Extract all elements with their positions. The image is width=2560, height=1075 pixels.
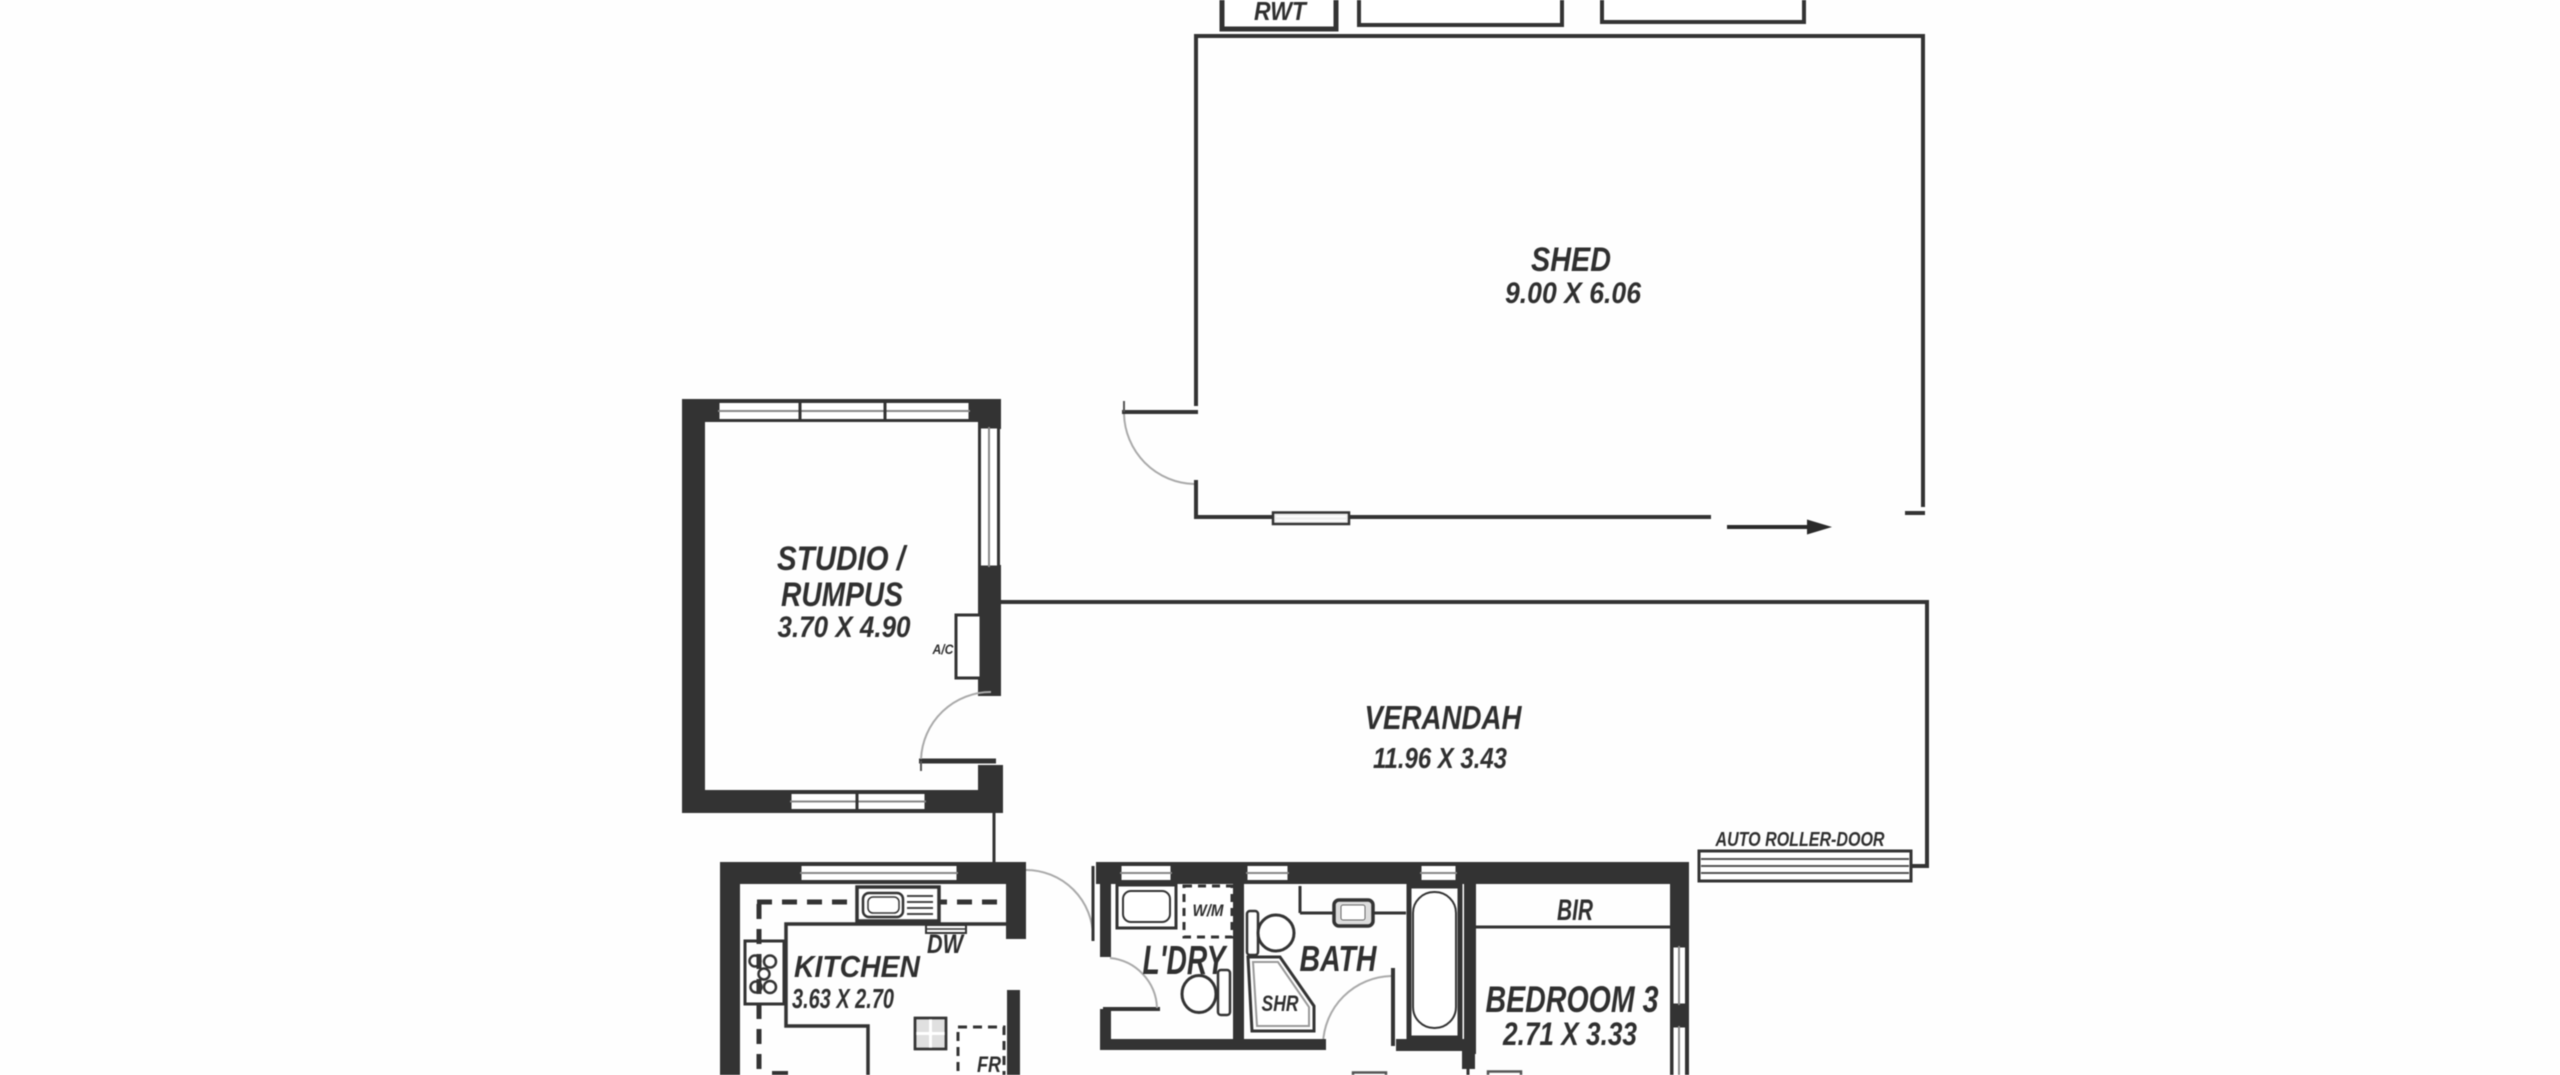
svg-text:SHR: SHR: [1262, 991, 1299, 1016]
svg-text:2.71 X 3.33: 2.71 X 3.33: [1502, 1016, 1637, 1052]
svg-text:9.00 X 6.06: 9.00 X 6.06: [1505, 277, 1641, 310]
svg-text:RUMPUS: RUMPUS: [781, 576, 903, 614]
svg-text:11.96 X 3.43: 11.96 X 3.43: [1373, 743, 1507, 775]
svg-text:BIR: BIR: [1557, 894, 1593, 927]
svg-text:AUTO ROLLER-DOOR: AUTO ROLLER-DOOR: [1715, 829, 1885, 851]
svg-text:KITCHEN: KITCHEN: [794, 949, 921, 984]
svg-text:FR: FR: [977, 1052, 1001, 1075]
svg-text:BATH: BATH: [1300, 938, 1378, 979]
svg-text:A/C: A/C: [932, 641, 955, 657]
svg-text:L'DRY: L'DRY: [1143, 937, 1229, 983]
svg-text:3.70 X 4.90: 3.70 X 4.90: [778, 611, 911, 644]
svg-text:3.63 X 2.70: 3.63 X 2.70: [792, 983, 894, 1014]
svg-text:DW: DW: [927, 929, 965, 959]
svg-text:W/M: W/M: [1193, 901, 1225, 920]
svg-text:BEDROOM 3: BEDROOM 3: [1486, 979, 1659, 1020]
svg-text:VERANDAH: VERANDAH: [1365, 699, 1523, 736]
svg-text:STUDIO /: STUDIO /: [777, 540, 908, 578]
svg-text:SHED: SHED: [1531, 241, 1611, 279]
svg-text:RWT: RWT: [1254, 0, 1308, 26]
